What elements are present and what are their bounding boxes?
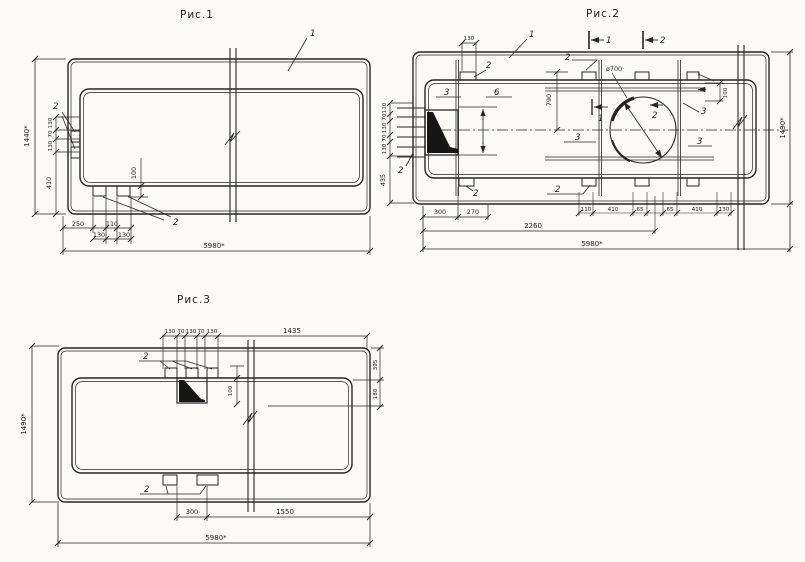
svg-text:100: 100 bbox=[723, 87, 729, 98]
svg-text:70: 70 bbox=[382, 134, 388, 142]
fig2-dim-rebar-offset: 100 bbox=[698, 74, 729, 104]
svg-text:2: 2 bbox=[660, 36, 665, 46]
fig2-title: Рис.2 bbox=[586, 8, 620, 20]
fig3-dims-bottom: 300 1550 bbox=[174, 486, 373, 547]
fig2-embed-bottom-1 bbox=[459, 178, 474, 186]
fig2-panel-opening bbox=[425, 80, 756, 178]
svg-text:1490*: 1490* bbox=[20, 413, 28, 435]
fig2-callout-frame: 6 bbox=[458, 88, 512, 155]
fig3-embed-bottom-1 bbox=[163, 475, 177, 485]
fig3-dim-height: 1490* bbox=[20, 343, 59, 505]
fig2-embed-top-3 bbox=[635, 72, 649, 80]
fig3-dim-width: 5980* bbox=[55, 503, 373, 547]
svg-text:100: 100 bbox=[228, 385, 234, 396]
fig2-left-stack-dims: 110 70 130 70 130 435 bbox=[379, 100, 414, 206]
fig3-embed-bottom-2 bbox=[197, 475, 218, 485]
fig1-dim-embed-depth: 100 bbox=[128, 158, 148, 200]
fig2-callout-rebar-3: 3 bbox=[701, 107, 706, 117]
svg-text:1490*: 1490* bbox=[779, 117, 787, 139]
fig2-section-mark-1-top: 1 bbox=[589, 31, 611, 49]
fig2-callout-embed-top-left: 2 bbox=[486, 61, 491, 71]
fig3-embed-top-3 bbox=[207, 368, 218, 378]
svg-text:100: 100 bbox=[130, 167, 138, 179]
fig3-break-line bbox=[243, 340, 257, 512]
svg-text:70: 70 bbox=[382, 113, 388, 121]
fig3-top-stack-dims: 130 70 130 70 130 bbox=[160, 329, 221, 369]
svg-text:110: 110 bbox=[106, 220, 118, 228]
svg-text:270: 270 bbox=[467, 208, 479, 216]
svg-text:410: 410 bbox=[692, 207, 703, 213]
fig2-embed-bottom-3 bbox=[635, 178, 649, 186]
svg-text:5980*: 5980* bbox=[581, 240, 603, 248]
svg-text:300: 300 bbox=[186, 508, 198, 516]
fig2-embed-bottom-2 bbox=[582, 178, 596, 186]
svg-text:130: 130 bbox=[93, 231, 105, 239]
svg-text:130: 130 bbox=[118, 231, 130, 239]
fig1-embed-bottom-2 bbox=[117, 186, 130, 196]
svg-text:1435: 1435 bbox=[283, 327, 301, 335]
svg-text:70: 70 bbox=[48, 130, 54, 138]
technical-drawing-sheet: Рис.1 1 2 2 1440* bbox=[0, 0, 805, 562]
svg-text:2: 2 bbox=[144, 485, 149, 495]
fig2-callout-embed-bottom-left: 2 bbox=[473, 189, 478, 199]
fig2-embed-top-2 bbox=[582, 72, 596, 80]
fig2-panel-outline bbox=[413, 52, 769, 204]
svg-text:130: 130 bbox=[48, 140, 54, 151]
svg-text:6: 6 bbox=[494, 88, 500, 98]
fig3-dim-1435: 1435 bbox=[218, 327, 370, 349]
figure-1: Рис.1 1 2 2 1440* bbox=[23, 9, 373, 255]
fig2-dim-hole-dia: ø700 bbox=[606, 65, 622, 73]
svg-text:180: 180 bbox=[373, 388, 379, 399]
fig1-break-line bbox=[225, 48, 240, 222]
fig1-left-stack-dims: 130 70 130 410 bbox=[45, 114, 80, 217]
fig1-callout-embeds-bottom: 2 bbox=[173, 218, 178, 228]
fig3-embed-top-1 bbox=[165, 368, 177, 378]
svg-text:395: 395 bbox=[373, 359, 379, 370]
svg-text:70: 70 bbox=[177, 329, 185, 335]
fig2-section-mark-2-top: 2 bbox=[643, 31, 665, 49]
fig2-dim-top-offset: 130 bbox=[459, 36, 479, 71]
fig2-dim-height: 1490* bbox=[771, 49, 793, 207]
svg-text:70: 70 bbox=[197, 329, 205, 335]
svg-text:130: 130 bbox=[382, 143, 388, 154]
fig3-title: Рис.3 bbox=[177, 294, 211, 306]
fig1-dim-height: 1440* bbox=[23, 56, 66, 217]
fig3-callout-embeds-top: 2 bbox=[139, 352, 212, 369]
fig2-callout-embed-top-mid: 2 bbox=[565, 53, 570, 63]
svg-text:790: 790 bbox=[545, 94, 553, 106]
svg-text:130: 130 bbox=[48, 117, 54, 128]
figure-2: Рис.2 ø700 bbox=[379, 8, 793, 252]
fig2-dims-bottom-mid: 110 410 65 65 410 130 bbox=[576, 192, 734, 234]
svg-text:5980*: 5980* bbox=[203, 242, 225, 250]
fig2-callout-embed-bottom-mid: 2 bbox=[555, 185, 560, 195]
svg-text:130: 130 bbox=[382, 122, 388, 133]
fig2-callout-rebar-4: 3 bbox=[697, 137, 702, 147]
fig2-section-mark-2-mid: 2 bbox=[650, 105, 663, 121]
svg-text:2: 2 bbox=[652, 111, 657, 121]
fig2-callout-panel: 1 bbox=[529, 30, 534, 40]
svg-text:2: 2 bbox=[143, 352, 148, 362]
svg-text:1: 1 bbox=[598, 114, 603, 124]
fig3-callout-embeds-bottom: 2 bbox=[140, 485, 206, 495]
svg-text:65: 65 bbox=[666, 207, 674, 213]
fig2-dim-hole-center: 790 bbox=[545, 69, 568, 133]
fig3-panel-opening bbox=[72, 378, 352, 473]
svg-text:130: 130 bbox=[207, 329, 218, 335]
svg-text:110: 110 bbox=[382, 102, 388, 113]
fig3-embed-top-2 bbox=[186, 368, 198, 378]
fig1-embed-bottom-1 bbox=[93, 186, 106, 196]
fig2-callout-rebar-1: 3 bbox=[444, 88, 449, 98]
fig3-dim-embed-depth: 100 bbox=[228, 366, 244, 407]
svg-text:1: 1 bbox=[606, 36, 611, 46]
svg-text:435: 435 bbox=[379, 174, 387, 186]
fig3-panel-outline bbox=[58, 348, 370, 502]
fig1-embed-left-1 bbox=[71, 131, 80, 142]
figure-3: Рис.3 2 2 bbox=[20, 294, 384, 547]
fig1-title: Рис.1 bbox=[180, 9, 214, 21]
fig2-left-loops bbox=[397, 108, 425, 157]
fig2-embed-top-1 bbox=[460, 72, 476, 80]
fig2-callout-rebar-2: 3 bbox=[575, 133, 580, 143]
svg-text:5980*: 5980* bbox=[205, 534, 227, 542]
fig1-panel-outline bbox=[68, 59, 370, 214]
svg-text:410: 410 bbox=[608, 207, 619, 213]
svg-text:110: 110 bbox=[581, 207, 592, 213]
svg-text:250: 250 bbox=[72, 220, 84, 228]
fig2-dim-span: 2260 bbox=[420, 222, 658, 234]
svg-text:1440*: 1440* bbox=[23, 125, 31, 147]
svg-text:1550: 1550 bbox=[276, 508, 294, 516]
fig1-dim-width: 5980* bbox=[60, 242, 373, 254]
svg-text:2260: 2260 bbox=[524, 222, 542, 230]
fig2-callout-loops-left: 2 bbox=[398, 166, 403, 176]
fig2-embed-top-4 bbox=[687, 72, 699, 80]
fig2-left-opening bbox=[425, 110, 458, 155]
fig1-callout-embeds-left: 2 bbox=[53, 102, 58, 112]
svg-text:130: 130 bbox=[464, 36, 475, 42]
svg-text:65: 65 bbox=[636, 207, 644, 213]
svg-text:410: 410 bbox=[45, 177, 53, 189]
svg-text:300: 300 bbox=[434, 208, 446, 216]
fig1-panel-opening bbox=[80, 89, 363, 186]
fig1-embed-left-2 bbox=[71, 147, 80, 158]
svg-text:130: 130 bbox=[186, 329, 197, 335]
fig2-break-line bbox=[733, 45, 747, 250]
svg-text:130: 130 bbox=[719, 207, 730, 213]
fig1-callout-panel: 1 bbox=[310, 29, 315, 39]
svg-text:130: 130 bbox=[165, 329, 176, 335]
fig2-section-mark-1-mid: 1 bbox=[592, 99, 608, 124]
fig2-embed-bottom-4 bbox=[687, 178, 699, 186]
drawing-canvas: Рис.1 1 2 2 1440* bbox=[0, 0, 805, 562]
